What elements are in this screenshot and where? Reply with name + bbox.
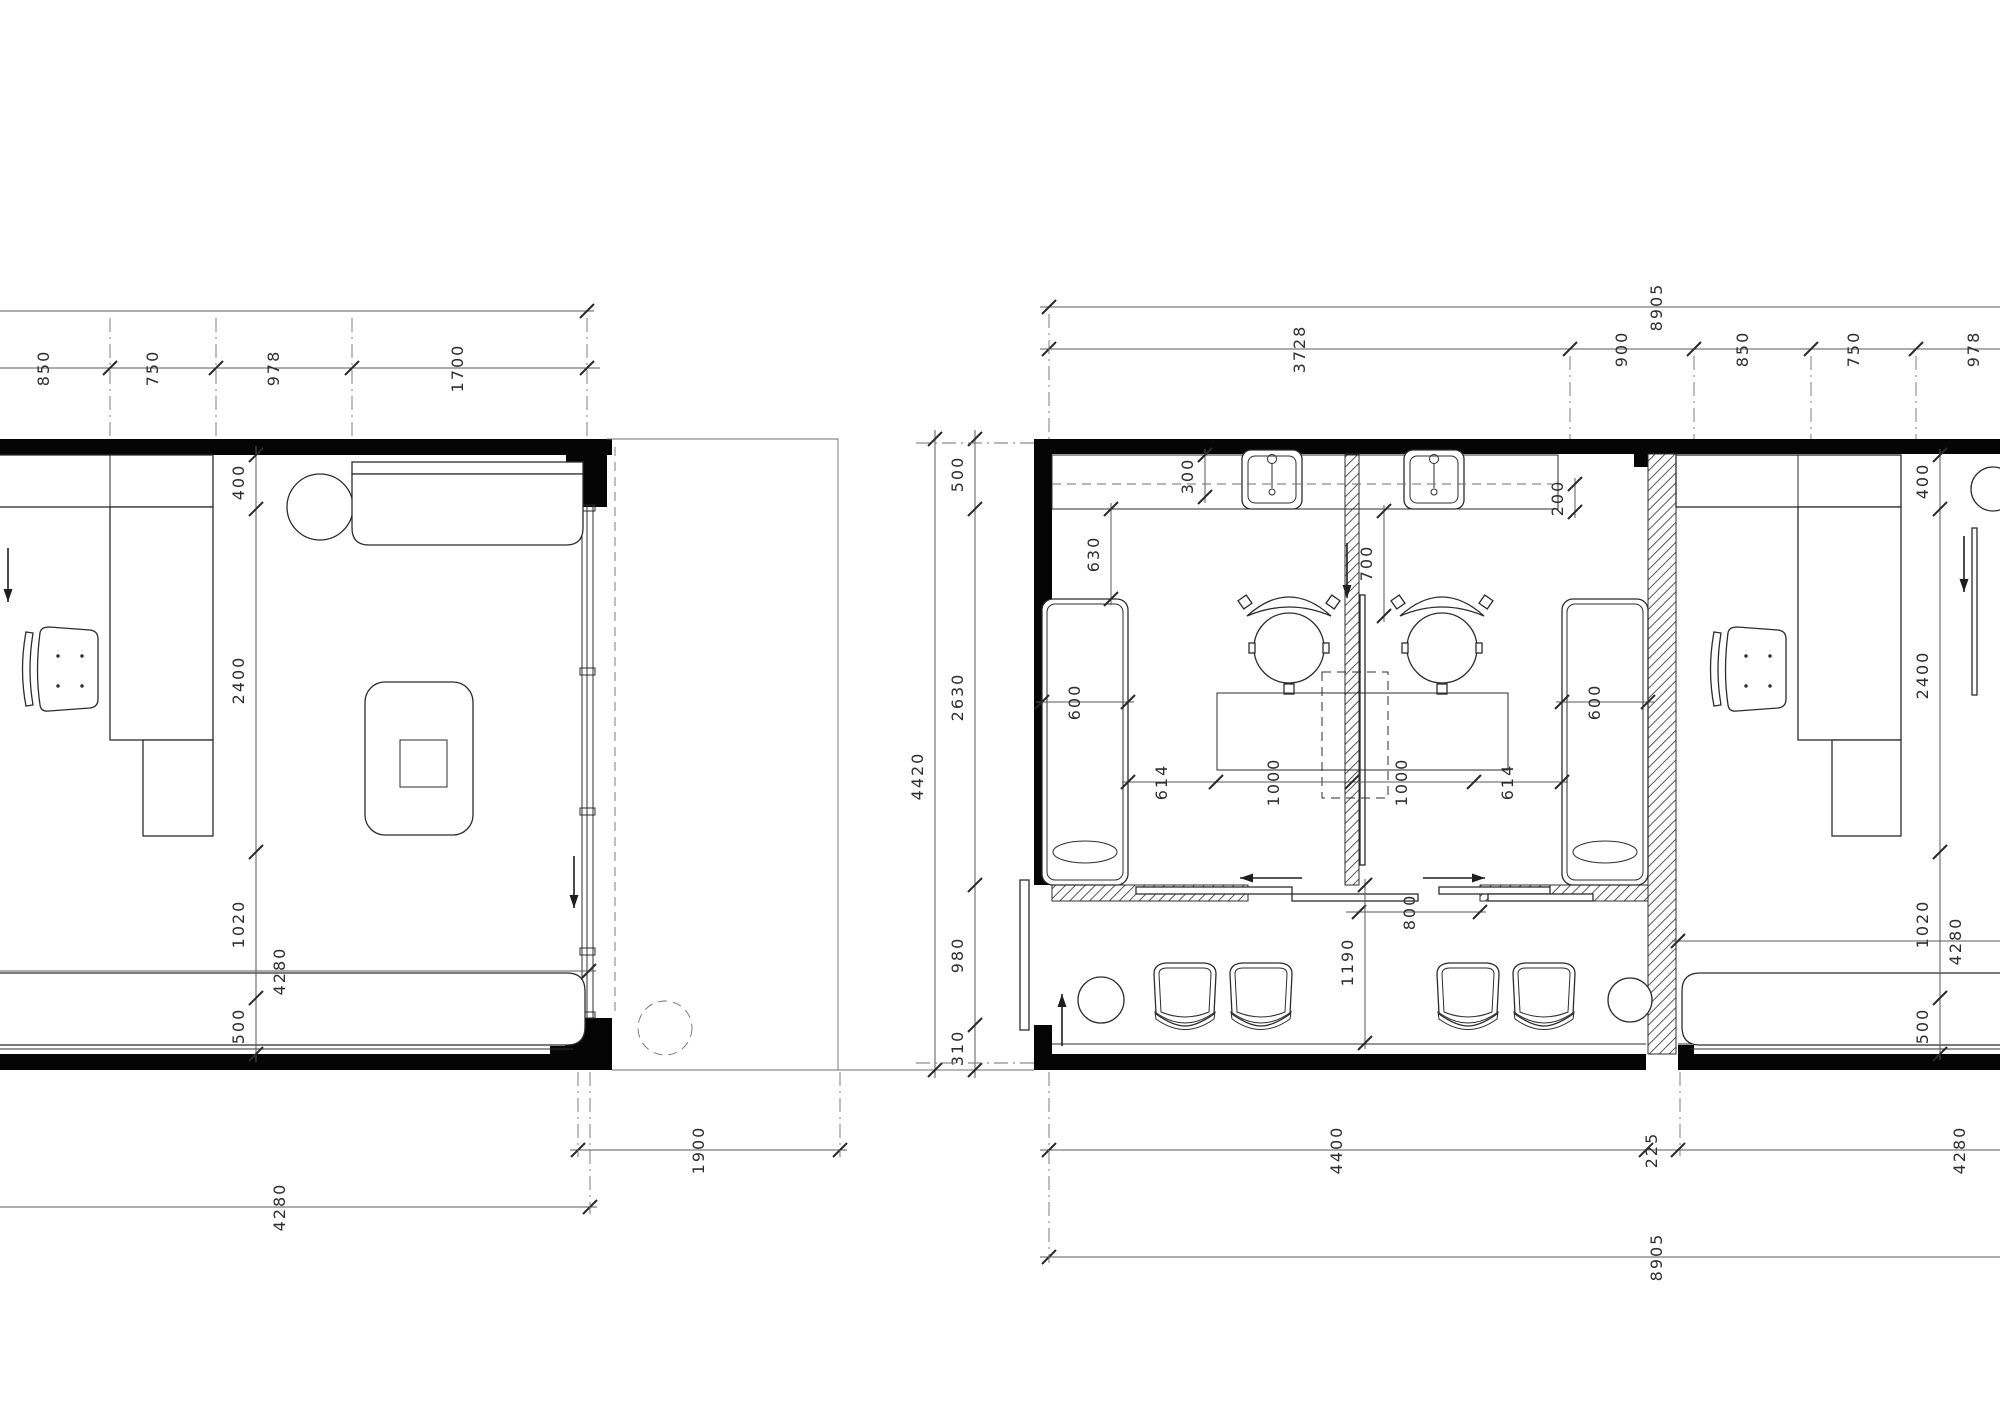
dim-label: 1020 xyxy=(229,900,248,949)
partition-screen xyxy=(1360,595,1365,865)
dim-label: 1190 xyxy=(1338,938,1357,987)
dimension-right-office-chain: 40024001020500 xyxy=(1913,448,1947,1061)
dim-label: 600 xyxy=(1585,684,1604,721)
dim-label: 4400 xyxy=(1327,1126,1346,1175)
dimension-right-top-outer: 8905 xyxy=(1040,283,2000,332)
entry-door-slide-arrow-icon xyxy=(1058,994,1067,1046)
dim-label: 300 xyxy=(1178,458,1197,495)
dim-label: 1700 xyxy=(448,344,467,393)
dim-label: 500 xyxy=(1913,1008,1932,1045)
dim-label: 2400 xyxy=(229,656,248,705)
waiting-chair xyxy=(1154,963,1216,1030)
dim-label: 900 xyxy=(1612,331,1631,368)
styling-chair-left xyxy=(1238,595,1340,694)
bench-sofa xyxy=(1682,973,2000,1049)
waiting-chair xyxy=(1513,963,1575,1030)
dimension-partition-1190: 1190 xyxy=(1338,878,1372,1050)
dim-label: 850 xyxy=(1733,331,1752,368)
left-room-door-slide-arrow-icon xyxy=(1240,874,1302,883)
dim-label: 4280 xyxy=(1950,1126,1969,1175)
stool xyxy=(287,474,353,540)
entry-sliding-door xyxy=(1020,880,1029,1030)
office-divider-wall xyxy=(1648,454,1676,1054)
wall-cabinet xyxy=(352,462,583,545)
side-table xyxy=(1078,977,1124,1023)
right-office-entry-arrow-icon xyxy=(1960,536,1969,592)
dimension-right-counter-300: 300 xyxy=(1178,448,1212,504)
dim-label: 4420 xyxy=(908,752,927,801)
dim-label: 4280 xyxy=(1946,917,1965,966)
dim-label: 750 xyxy=(143,350,162,387)
left-office-window-arrow-icon xyxy=(570,856,579,908)
dim-label: 2400 xyxy=(1913,651,1932,700)
office-top-counter xyxy=(0,455,213,507)
wall-bottom-right xyxy=(1678,1054,2000,1070)
dim-label: 700 xyxy=(1357,545,1376,582)
plan-right-treatment xyxy=(1020,439,2000,1070)
dim-label: 614 xyxy=(1152,764,1171,801)
dim-label: 500 xyxy=(948,456,967,493)
dimension-right-bottom-outer: 8905 xyxy=(1040,1233,2000,1282)
dimension-right-left-outer: 4420 xyxy=(908,430,942,1078)
floor-plan-canvas: 8507509781700400240010205004280190042808… xyxy=(0,0,2000,1413)
center-table xyxy=(365,682,473,835)
waiting-chair xyxy=(1437,963,1499,1030)
styling-chair-right xyxy=(1391,595,1493,694)
wall-bottom-step xyxy=(550,1046,565,1070)
central-partition-wall xyxy=(1345,454,1359,885)
dim-label: 1000 xyxy=(1392,758,1411,807)
dimension-left-top-outer xyxy=(0,304,594,318)
dim-label: 978 xyxy=(264,350,283,387)
stool xyxy=(1971,467,2000,511)
dim-label: 978 xyxy=(1964,331,1983,368)
window-wall xyxy=(580,505,595,1018)
wall-top xyxy=(0,439,612,455)
office-chair xyxy=(23,627,99,711)
dim-label: 8905 xyxy=(1647,1233,1666,1282)
right-room-door-slide-arrow-icon xyxy=(1423,874,1485,883)
office-chair xyxy=(1711,627,1787,711)
office-desk xyxy=(110,507,213,836)
dim-label: 400 xyxy=(1913,463,1932,500)
dimension-annotations: 8507509781700400240010205004280190042808… xyxy=(0,283,2000,1282)
wall-top-notch xyxy=(1634,454,1648,467)
terrace-dashed-circle xyxy=(638,1001,692,1055)
wash-counter xyxy=(1052,455,1558,509)
wall-bottom-left xyxy=(1034,1054,1646,1070)
dimension-left-bottom-1900: 1900 xyxy=(570,1126,847,1175)
dimension-left-room-chain: 40024001020500 xyxy=(229,446,263,1062)
dim-label: 400 xyxy=(229,464,248,501)
dim-label: 500 xyxy=(229,1008,248,1045)
dimension-left-top-chain: 8507509781700 xyxy=(0,344,600,393)
dim-label: 614 xyxy=(1498,764,1517,801)
dim-label: 4280 xyxy=(270,1183,289,1232)
office-desk xyxy=(1798,507,1901,836)
office-top-counter xyxy=(1676,455,1901,507)
left-office-entry-arrow-icon xyxy=(4,548,13,602)
floor-plan-drawing: 8507509781700400240010205004280190042808… xyxy=(0,0,2000,1413)
dimension-left-bottom-4280: 4280 xyxy=(0,1183,597,1232)
dim-label: 4280 xyxy=(270,947,289,996)
lounger-left xyxy=(1042,599,1128,885)
dimension-right-top-chain: 3728900850750978 xyxy=(1040,325,2000,374)
dimension-right-office-width: 4280 xyxy=(1671,917,2000,966)
dim-label: 600 xyxy=(1065,684,1084,721)
dimension-right-bottom-chain: 44002254280 xyxy=(1040,1126,2000,1175)
sink-left xyxy=(1242,450,1302,509)
dim-label: 1000 xyxy=(1264,758,1283,807)
side-table xyxy=(1608,978,1652,1022)
dim-label: 750 xyxy=(1844,331,1863,368)
dimension-right-counter-200: 200 xyxy=(1548,477,1582,519)
office-entry-door-leaf xyxy=(1972,528,1977,695)
wall-corner-top-right xyxy=(580,439,607,507)
plan-left-office xyxy=(0,439,1034,1070)
dim-label: 200 xyxy=(1548,480,1567,517)
dim-label: 980 xyxy=(948,937,967,974)
dim-label: 850 xyxy=(34,350,53,387)
waiting-chair xyxy=(1230,963,1292,1030)
lounger-right xyxy=(1562,599,1648,885)
wall-bottom xyxy=(0,1054,565,1070)
dim-label: 1900 xyxy=(689,1126,708,1175)
dim-label: 2630 xyxy=(948,673,967,722)
terrace-outline xyxy=(607,439,1034,1070)
dimension-right-left-chain: 5002630980310 xyxy=(948,430,982,1078)
bench-sofa xyxy=(0,973,585,1049)
dim-label: 310 xyxy=(948,1030,967,1067)
dim-label: 8905 xyxy=(1647,283,1666,332)
dim-label: 225 xyxy=(1642,1132,1661,1169)
dim-label: 3728 xyxy=(1290,325,1309,374)
dim-label: 800 xyxy=(1400,894,1419,931)
dimension-right-lounger-630: 630 xyxy=(1084,502,1118,606)
sink-right xyxy=(1404,450,1464,509)
wall-top xyxy=(1034,439,2000,454)
dim-label: 630 xyxy=(1084,536,1103,573)
